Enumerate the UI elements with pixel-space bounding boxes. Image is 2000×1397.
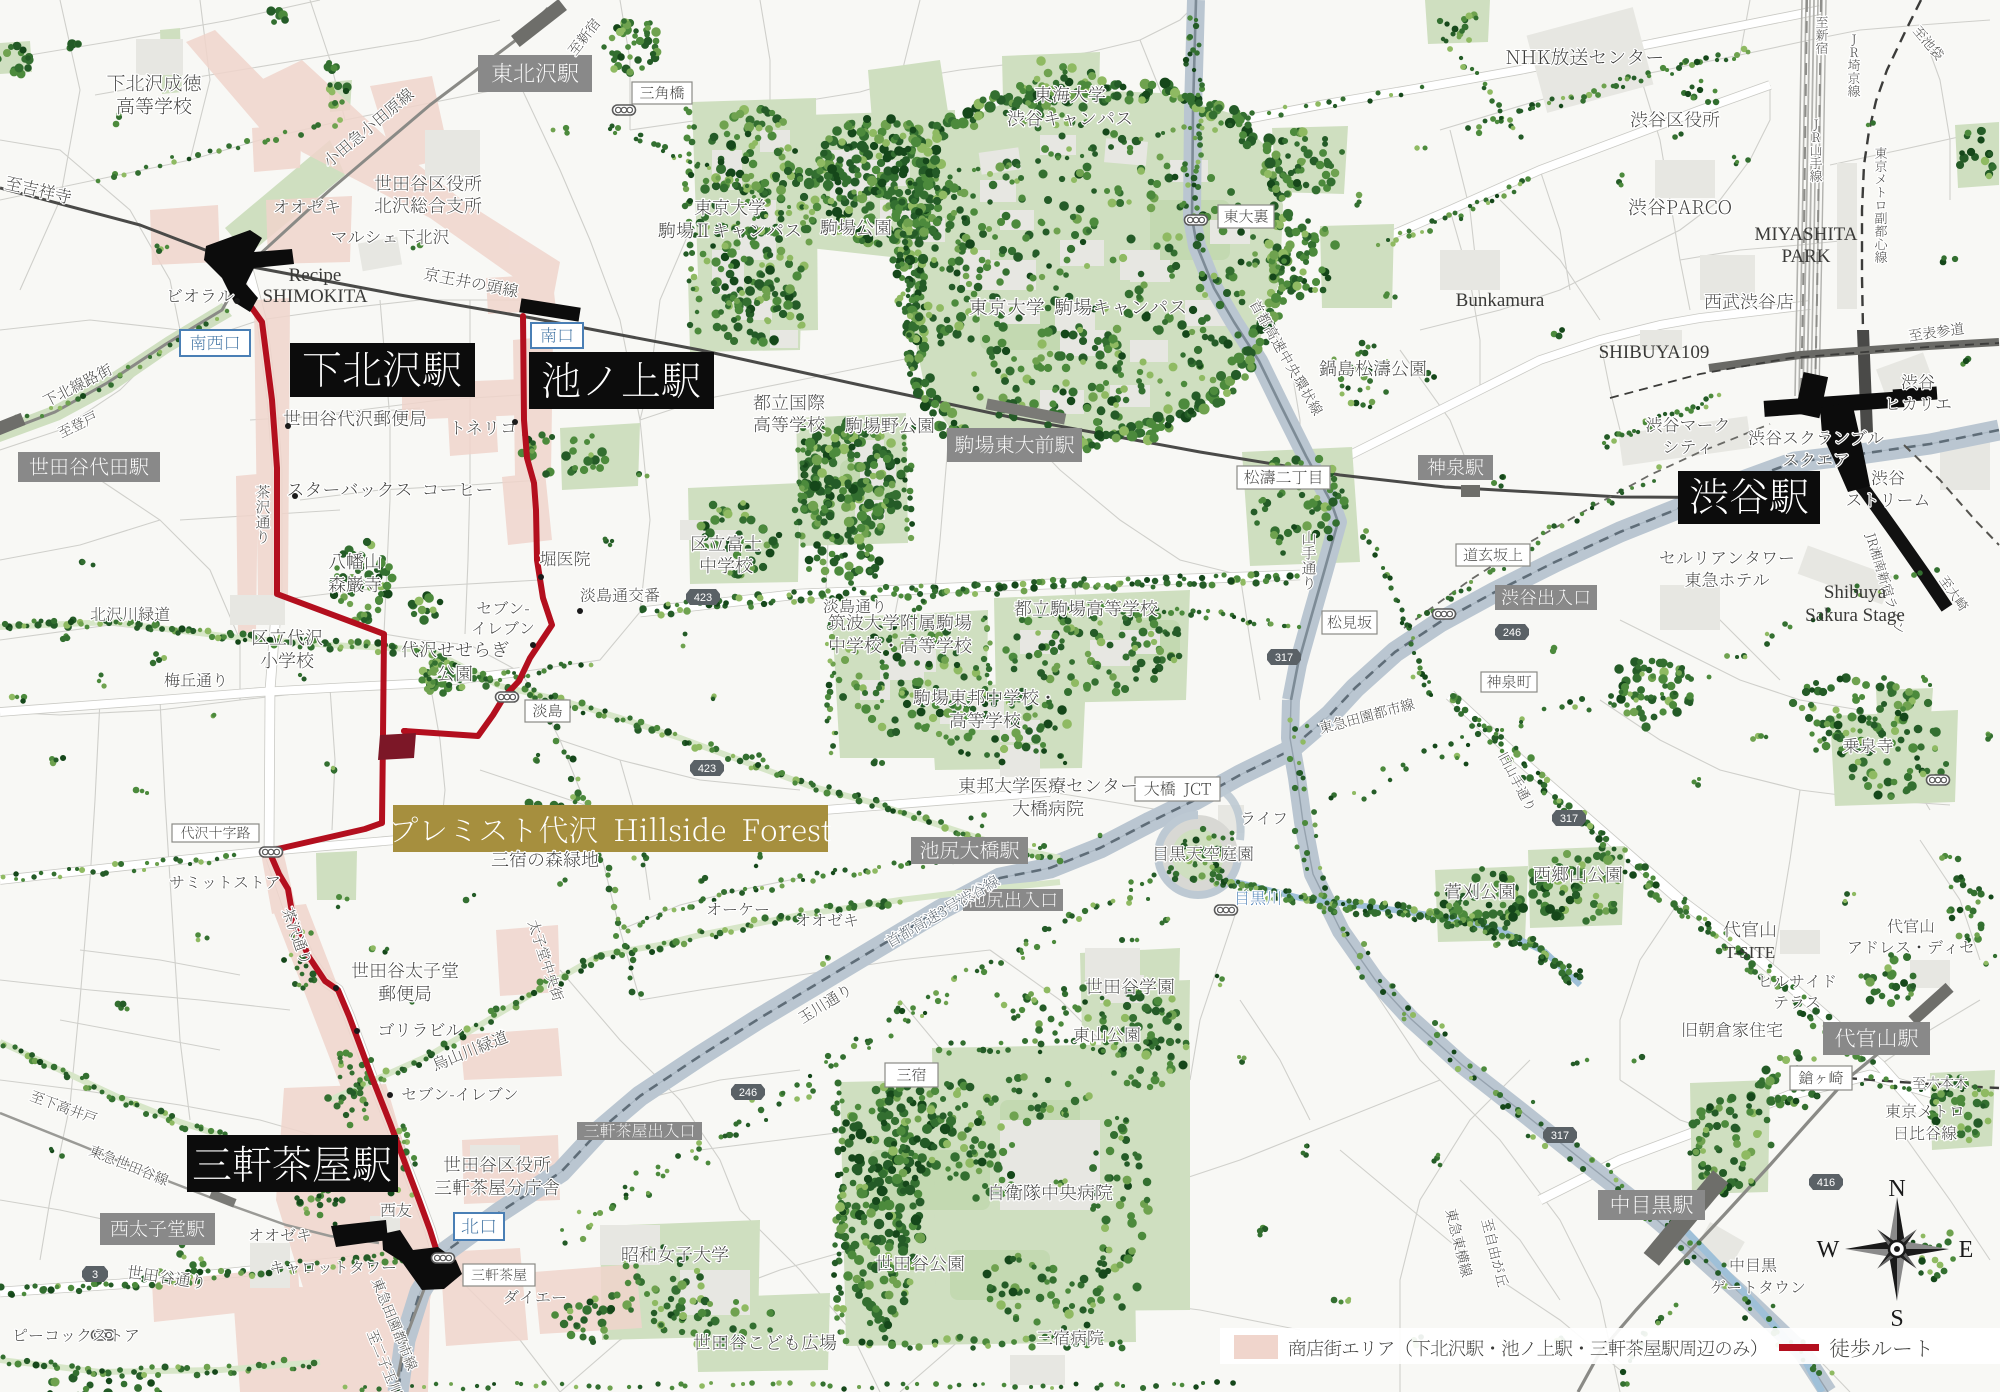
svg-text:Sakura Stage: Sakura Stage (1805, 605, 1905, 626)
svg-text:317: 317 (1275, 652, 1293, 664)
svg-text:423: 423 (698, 763, 716, 775)
svg-text:317: 317 (1560, 813, 1578, 825)
svg-text:E: E (1959, 1237, 1974, 1263)
svg-text:SHIBUYA109: SHIBUYA109 (1599, 342, 1710, 363)
svg-text:3: 3 (92, 1269, 98, 1281)
svg-text:416: 416 (1817, 1177, 1835, 1189)
svg-text:246: 246 (1503, 627, 1521, 639)
svg-text:T-SITE: T-SITE (1725, 943, 1775, 962)
svg-text:W: W (1817, 1237, 1840, 1263)
svg-text:Bunkamura: Bunkamura (1456, 290, 1545, 311)
svg-text:Recipe: Recipe (289, 265, 342, 286)
svg-text:423: 423 (694, 592, 712, 604)
svg-text:PARK: PARK (1782, 246, 1831, 267)
svg-text:SHIMOKITA: SHIMOKITA (262, 286, 367, 307)
svg-text:MIYASHITA: MIYASHITA (1755, 224, 1858, 245)
svg-text:N: N (1888, 1176, 1905, 1202)
svg-text:246: 246 (739, 1087, 757, 1099)
svg-text:Shibuya: Shibuya (1824, 582, 1887, 603)
svg-text:317: 317 (1551, 1130, 1569, 1142)
